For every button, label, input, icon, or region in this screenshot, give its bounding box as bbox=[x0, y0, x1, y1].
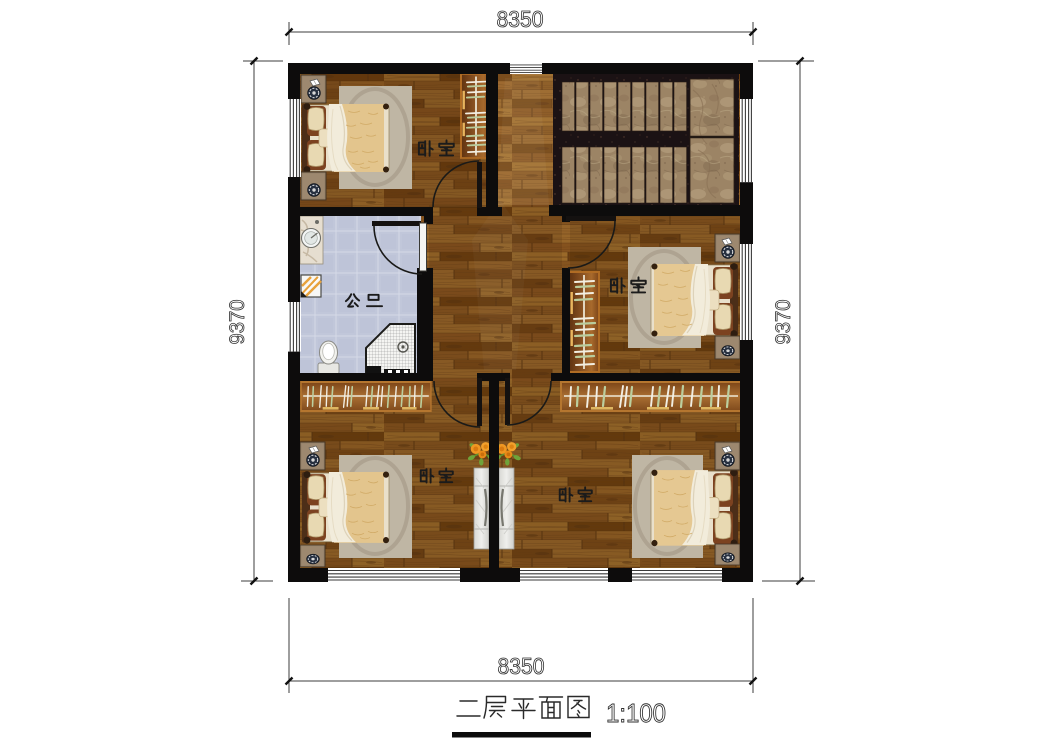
svg-text:9370: 9370 bbox=[772, 300, 795, 345]
svg-text:1:100: 1:100 bbox=[606, 698, 666, 728]
svg-text:9370: 9370 bbox=[226, 300, 249, 345]
svg-text:8350: 8350 bbox=[497, 6, 544, 32]
svg-text:8350: 8350 bbox=[498, 653, 545, 679]
